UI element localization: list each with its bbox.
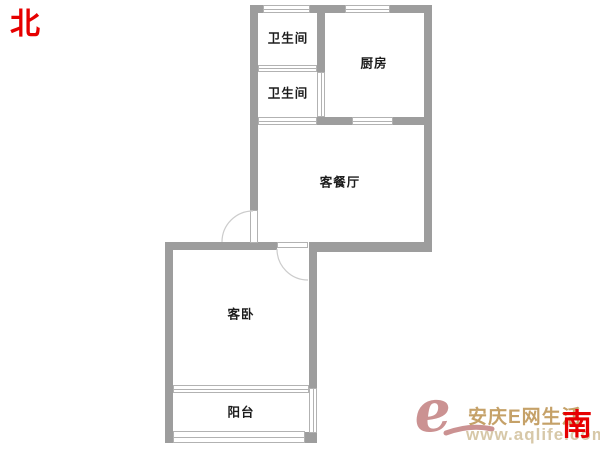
bedroom-door-leaf bbox=[277, 242, 308, 248]
wall-kitchen-bottom-a bbox=[317, 117, 352, 125]
compass-south-label: 南 bbox=[562, 411, 592, 441]
window-balcony-bottom bbox=[173, 431, 305, 443]
wall-left-upper bbox=[250, 5, 258, 210]
wall-bath-kitchen bbox=[317, 5, 325, 72]
window-bath-divider bbox=[258, 65, 317, 72]
wall-bedroom-top bbox=[165, 242, 277, 250]
room-label-balcony: 阳台 bbox=[227, 402, 254, 421]
wall-bedroom-left bbox=[165, 242, 173, 443]
wall-bedroom-right bbox=[309, 250, 317, 388]
window-bedroom-balcony bbox=[173, 385, 309, 393]
window-kitchen-bottom bbox=[352, 117, 393, 125]
window-kitchen-top bbox=[345, 5, 390, 13]
room-label-bathroom-2: 卫生间 bbox=[268, 83, 309, 102]
window-balcony-right bbox=[309, 388, 317, 433]
entry-door-leaf bbox=[250, 210, 258, 243]
wall-kitchen-bottom-b bbox=[393, 117, 424, 125]
room-label-kitchen: 厨房 bbox=[360, 53, 387, 72]
watermark-logo-e: e bbox=[412, 381, 453, 441]
wall-balcony-corner-right bbox=[305, 432, 317, 443]
wall-right bbox=[424, 5, 432, 252]
window-bathroom1-top bbox=[263, 5, 310, 13]
compass-north-label: 北 bbox=[10, 10, 40, 40]
window-bathroom2-bottom bbox=[258, 117, 317, 125]
entry-door-swing-arc bbox=[222, 211, 253, 242]
room-label-bedroom: 客卧 bbox=[227, 304, 254, 323]
wall-living-bottom bbox=[309, 242, 432, 252]
room-label-bathroom-1: 卫生间 bbox=[268, 28, 309, 47]
window-bathroom2-right bbox=[317, 72, 325, 117]
room-label-living-dining: 客餐厅 bbox=[320, 172, 361, 191]
bedroom-door-swing-arc bbox=[277, 249, 308, 280]
floor-plan-canvas: 卫生间 卫生间 厨房 客餐厅 客卧 阳台 北 南 e 安庆E网生活 www.aq… bbox=[0, 0, 600, 450]
